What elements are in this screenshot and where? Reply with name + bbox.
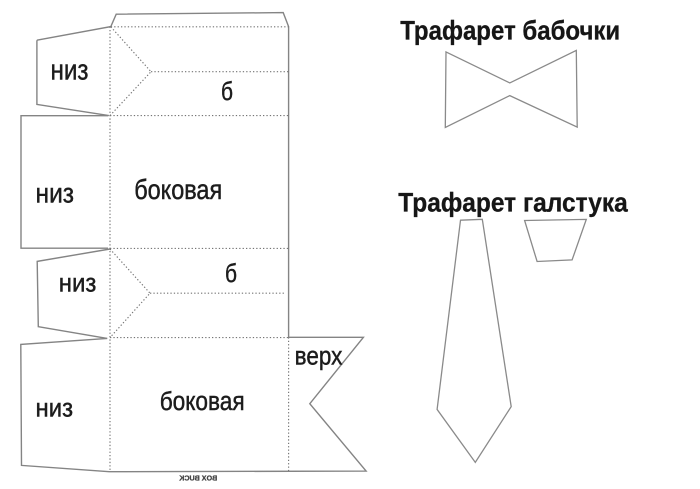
svg-text:низ: низ <box>59 268 97 298</box>
svg-text:боковая: боковая <box>134 174 222 205</box>
svg-text:низ: низ <box>51 54 89 86</box>
svg-text:низ: низ <box>36 393 74 423</box>
svg-text:боковая: боковая <box>160 388 245 416</box>
svg-text:низ: низ <box>36 178 75 209</box>
svg-text:BOX BUCK: BOX BUCK <box>179 474 218 483</box>
svg-text:б: б <box>221 76 233 106</box>
svg-text:Трафарет бабочки: Трафарет бабочки <box>400 15 620 45</box>
svg-text:Трафарет галстука: Трафарет галстука <box>398 188 628 218</box>
svg-text:б: б <box>225 258 237 288</box>
svg-text:верх: верх <box>295 341 343 371</box>
